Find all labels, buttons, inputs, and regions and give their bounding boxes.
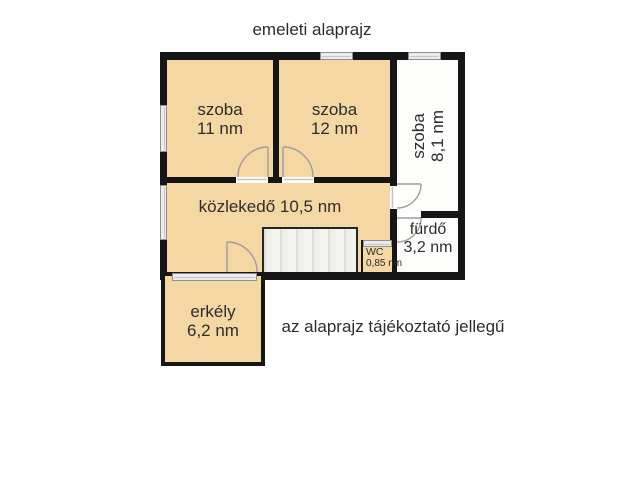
wall-hall-a <box>167 177 236 183</box>
room-area: 0,85 nm <box>366 258 402 270</box>
wall-hall-b <box>268 177 282 183</box>
page-title: emeleti alaprajz <box>0 20 624 40</box>
room-area: 11 nm <box>167 119 273 138</box>
disclaimer-note: az alaprajz tájékoztató jellegű <box>265 317 521 337</box>
room-area: 10,5 nm <box>280 197 341 216</box>
label-kozlekedo: közlekedő 10,5 nm <box>170 197 370 216</box>
room-name: szoba <box>408 110 427 162</box>
wall-furdo-top <box>421 211 458 218</box>
room-name: szoba <box>167 100 273 119</box>
wall-szoba81-left-upper <box>390 60 397 186</box>
room-name: erkély <box>161 302 265 321</box>
floor-plan: emeleti alaprajz <box>0 0 640 480</box>
balcony-door-strip <box>172 273 257 281</box>
label-szoba81: szoba8,1 nm <box>397 60 458 211</box>
room-name: közlekedő <box>199 197 276 216</box>
label-wc: WC0,85 nm <box>366 246 402 270</box>
room-area: 6,2 nm <box>161 321 265 340</box>
window-top-szoba81 <box>408 52 441 60</box>
window-left-szoba11 <box>160 105 167 152</box>
window-top-szoba12 <box>320 52 353 60</box>
label-szoba12: szoba12 nm <box>279 100 390 138</box>
label-erkely: erkély6,2 nm <box>161 302 265 340</box>
wall-left <box>160 52 167 280</box>
label-szoba11: szoba11 nm <box>167 100 273 138</box>
room-area: 8,1 nm <box>427 110 446 162</box>
room-name: fürdő <box>390 221 466 239</box>
staircase <box>262 227 358 272</box>
room-area: 12 nm <box>279 119 390 138</box>
room-name: WC <box>366 246 402 258</box>
window-left-kozlekedo <box>160 185 167 240</box>
room-name: szoba <box>279 100 390 119</box>
wall-hall-c <box>314 177 390 183</box>
